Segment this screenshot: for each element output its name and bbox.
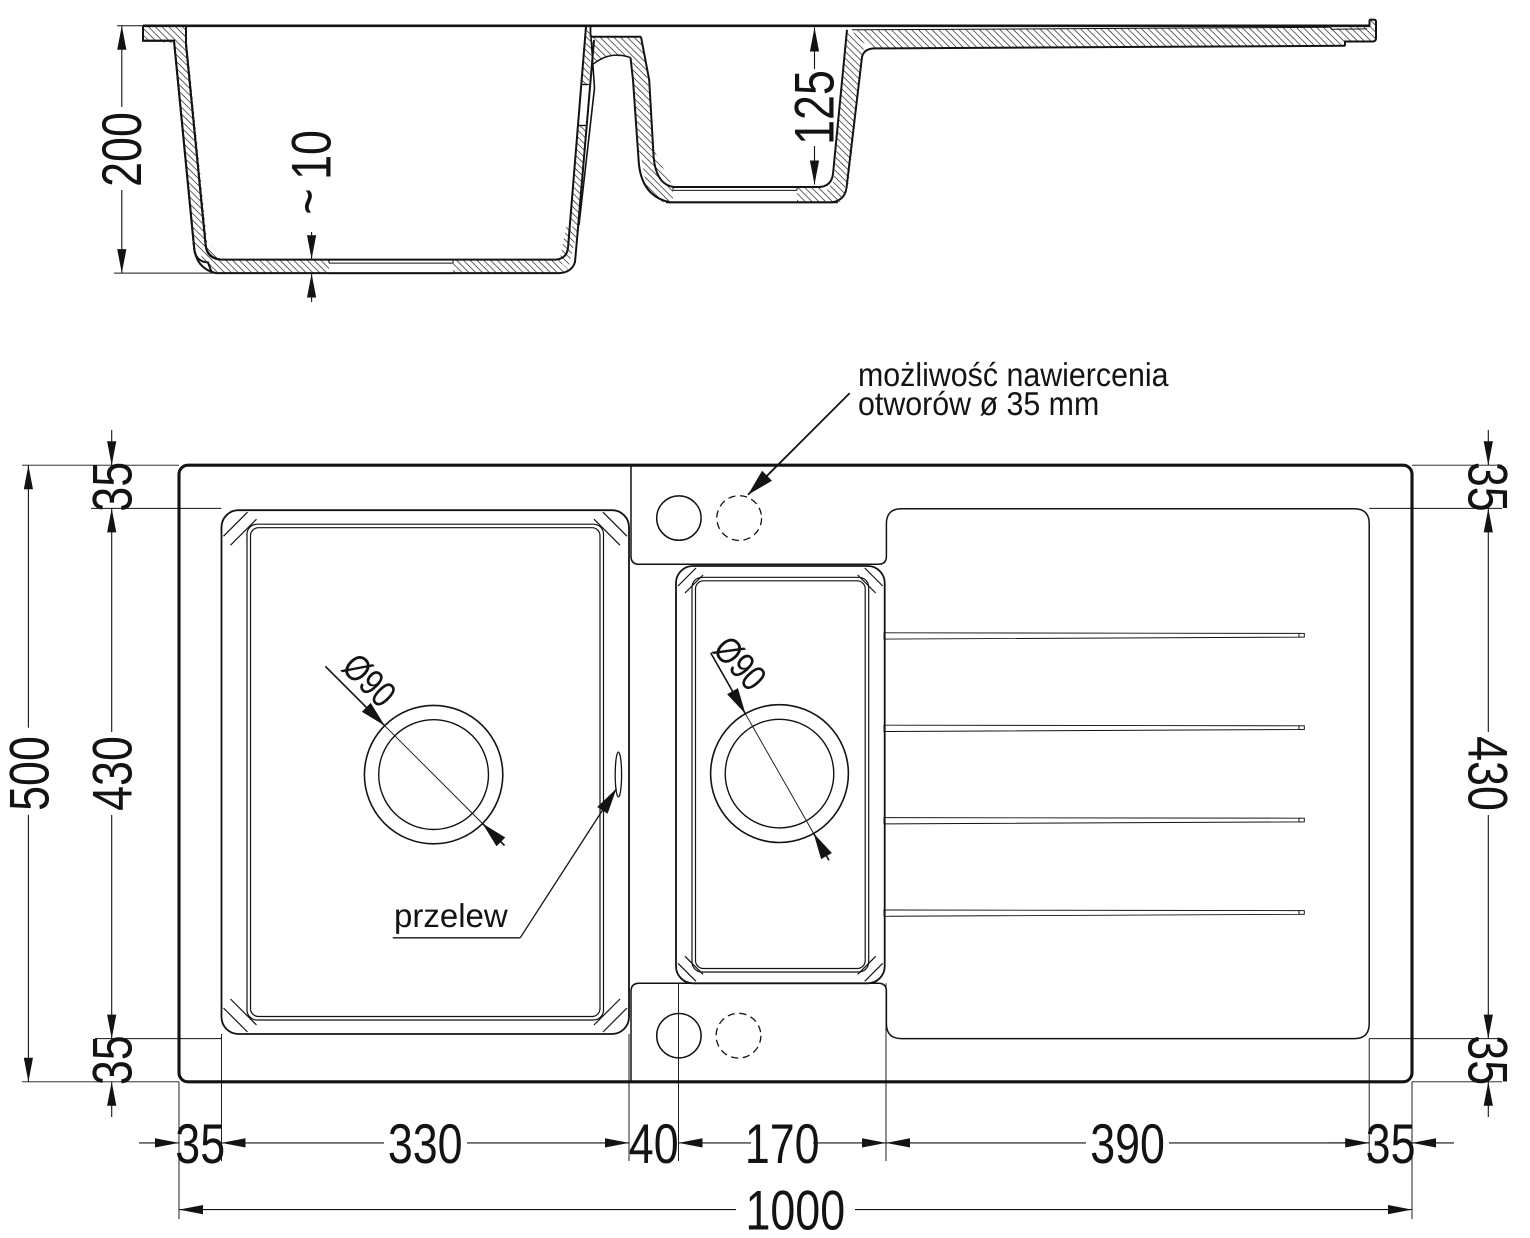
- svg-text:35: 35: [175, 1112, 225, 1175]
- svg-text:35: 35: [1456, 462, 1519, 512]
- svg-text:200: 200: [90, 112, 153, 187]
- svg-text:1000: 1000: [745, 1179, 845, 1238]
- svg-text:125: 125: [782, 70, 845, 145]
- svg-text:10: 10: [280, 130, 343, 180]
- svg-text:otworów ø 35 mm: otworów ø 35 mm: [858, 385, 1099, 422]
- svg-text:170: 170: [745, 1112, 820, 1175]
- svg-text:35: 35: [81, 1035, 144, 1085]
- svg-text:390: 390: [1090, 1112, 1165, 1175]
- svg-text:~: ~: [276, 188, 339, 214]
- svg-text:430: 430: [1456, 736, 1519, 811]
- svg-text:430: 430: [81, 736, 144, 811]
- svg-text:35: 35: [1366, 1112, 1416, 1175]
- svg-text:330: 330: [388, 1112, 463, 1175]
- svg-text:35: 35: [81, 462, 144, 512]
- svg-text:35: 35: [1456, 1035, 1519, 1085]
- svg-text:40: 40: [629, 1112, 679, 1175]
- svg-text:przelew: przelew: [394, 897, 508, 934]
- svg-text:500: 500: [0, 736, 60, 811]
